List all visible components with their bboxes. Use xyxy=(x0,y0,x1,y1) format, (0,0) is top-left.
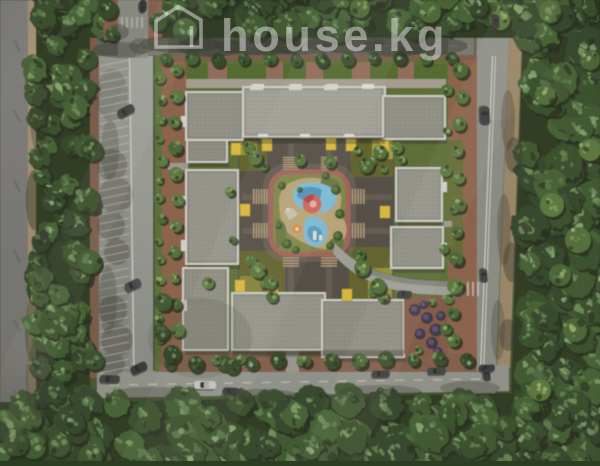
svg-text:house.kg: house.kg xyxy=(221,10,448,61)
